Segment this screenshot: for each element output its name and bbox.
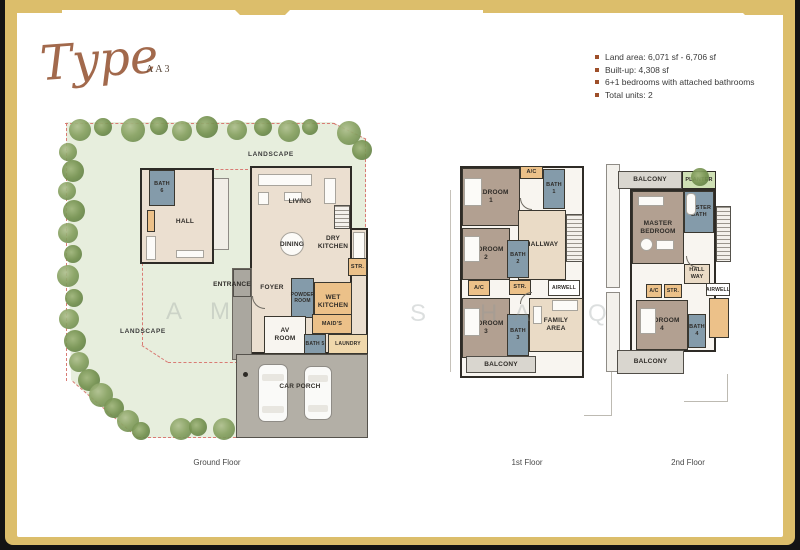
- service-ledge: [709, 298, 729, 338]
- legend-text: Total units: 2: [605, 91, 653, 100]
- tree-icon: [69, 119, 91, 141]
- watermark-letter: S: [410, 300, 426, 328]
- tree-icon: [59, 143, 77, 161]
- frame-tab: [17, 10, 62, 13]
- sofa: [656, 240, 674, 250]
- room-ac: A/C: [520, 166, 543, 179]
- tree-icon: [132, 422, 150, 440]
- caption-first-floor: 1st Floor: [477, 458, 577, 467]
- legend-item: 6+1 bedrooms with attached bathrooms: [595, 78, 755, 87]
- room-av: AV ROOM: [264, 316, 306, 354]
- watermark-letter: A: [514, 300, 530, 328]
- room-balcony: BALCONY: [466, 356, 536, 373]
- caption-second-floor: 2nd Floor: [638, 458, 738, 467]
- tree-icon: [58, 223, 78, 243]
- room-dining: DINING: [268, 240, 316, 250]
- legend-item: Total units: 2: [595, 91, 755, 100]
- armchair: [258, 192, 269, 205]
- room-airwell: AIRWELL: [706, 283, 730, 296]
- bed: [464, 178, 482, 206]
- watermark-letter: M: [210, 298, 230, 326]
- bed: [638, 196, 664, 206]
- tree-icon: [59, 309, 79, 329]
- room-entrance: ENTRANCE: [208, 280, 256, 290]
- watermark-letter: A: [166, 298, 182, 326]
- bathtub: [686, 193, 696, 215]
- room-living: LIVING: [270, 196, 330, 208]
- frame-tab: [740, 10, 783, 15]
- room-powder: POWDER ROOM: [291, 278, 314, 318]
- tree-icon: [213, 418, 235, 440]
- tree-icon: [64, 330, 86, 352]
- watermark-letter: H: [480, 300, 497, 328]
- tree-icon: [254, 118, 272, 136]
- tree-icon: [65, 289, 83, 307]
- bed: [464, 236, 480, 262]
- tree-icon: [278, 120, 300, 142]
- tree-icon: [64, 245, 82, 263]
- car-porch: [236, 354, 368, 438]
- stairs: [566, 214, 583, 262]
- room-bath5: BATH 5: [304, 334, 326, 354]
- landscape-label: LANDSCAPE: [248, 152, 294, 159]
- spec-legend: Land area: 6,071 sf - 6,706 sf Built-up:…: [595, 53, 755, 103]
- bed: [640, 308, 656, 334]
- room-ac: A/C: [468, 280, 490, 296]
- armchair: [533, 306, 542, 324]
- tree-icon: [62, 160, 84, 182]
- room-laundry: LAUNDRY: [328, 334, 368, 354]
- tree-icon: [172, 121, 192, 141]
- bullet-icon: [595, 80, 599, 84]
- tree-icon: [150, 117, 168, 135]
- legend-text: 6+1 bedrooms with attached bathrooms: [605, 78, 755, 87]
- bullet-icon: [595, 68, 599, 72]
- legend-text: Built-up: 4,308 sf: [605, 66, 669, 75]
- tree-icon: [121, 118, 145, 142]
- bullet-icon: [595, 93, 599, 97]
- room-hall: HALL: [162, 214, 208, 230]
- watermark-letter: Q: [588, 300, 607, 328]
- room-bath4: BATH 4: [688, 314, 706, 348]
- legend-text: Land area: 6,071 sf - 6,706 sf: [605, 53, 716, 62]
- tree-icon: [57, 265, 79, 287]
- car: [258, 364, 288, 422]
- caption-ground-floor: Ground Floor: [167, 458, 267, 467]
- tree-icon: [63, 200, 85, 222]
- room-dry-kitchen: DRY KITCHEN: [314, 234, 352, 252]
- stairs: [334, 205, 350, 229]
- sofa: [258, 174, 312, 186]
- room-maids: MAID'S: [312, 314, 352, 334]
- hall-closet: [147, 210, 155, 232]
- frame-tab: [483, 10, 783, 13]
- tree-icon: [691, 168, 709, 186]
- deck-line: [450, 190, 451, 372]
- page-title-variant: AA3: [146, 64, 171, 75]
- room-balcony-bottom: BALCONY: [617, 350, 684, 374]
- legend-item: Land area: 6,071 sf - 6,706 sf: [595, 53, 755, 62]
- furniture: [146, 236, 156, 260]
- hall-deck: [213, 178, 229, 250]
- room-bath2: BATH 2: [507, 240, 529, 278]
- tree-icon: [189, 418, 207, 436]
- room-bath1: BATH 1: [543, 169, 565, 209]
- sofa: [552, 300, 578, 311]
- car: [304, 366, 332, 420]
- room-foyer: FOYER: [254, 282, 290, 294]
- tree-icon: [58, 182, 76, 200]
- room-str: STR.: [664, 284, 682, 298]
- furniture: [176, 250, 204, 258]
- room-bath6: BATH 6: [149, 170, 175, 206]
- brochure-page: Type AA3 Land area: 6,071 sf - 6,706 sf …: [0, 0, 800, 550]
- legend-item: Built-up: 4,308 sf: [595, 66, 755, 75]
- setback-line: [168, 362, 238, 363]
- room-car-porch: CAR PORCH: [268, 382, 332, 392]
- page-title: Type: [38, 32, 159, 88]
- room-balcony-top: BALCONY: [618, 171, 682, 189]
- bed: [464, 308, 480, 336]
- porch-column: [243, 372, 248, 377]
- stairs: [716, 206, 731, 262]
- tree-icon: [196, 116, 218, 138]
- tree-icon: [302, 119, 318, 135]
- tree-icon: [227, 120, 247, 140]
- frame-tab: [235, 10, 290, 15]
- landscape-label: LANDSCAPE: [120, 329, 166, 336]
- room-airwell: AIRWELL: [548, 280, 580, 296]
- room-ac: A/C: [646, 284, 662, 298]
- tree-icon: [94, 118, 112, 136]
- roof-line: [684, 374, 728, 402]
- chair: [640, 238, 653, 251]
- bullet-icon: [595, 55, 599, 59]
- tree-icon: [352, 140, 372, 160]
- room-str: STR.: [348, 258, 367, 276]
